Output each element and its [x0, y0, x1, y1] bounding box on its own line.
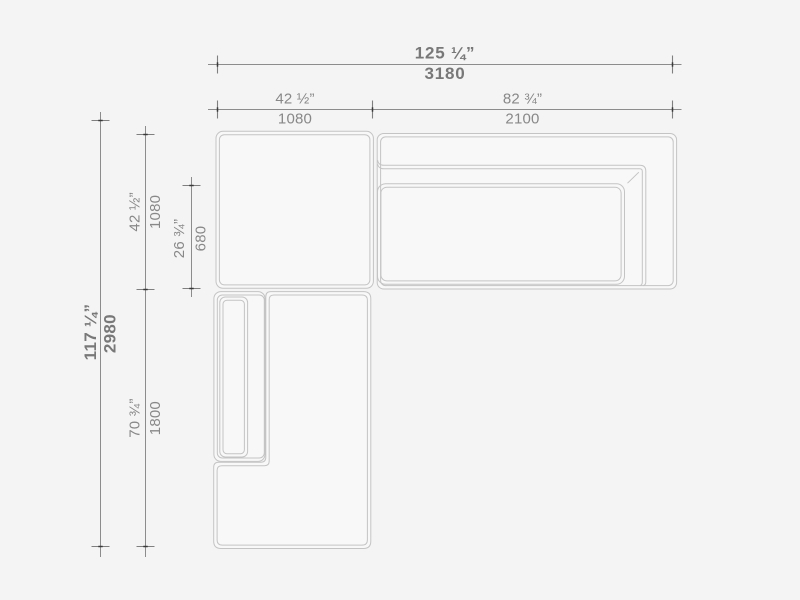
- svg-text:2100: 2100: [505, 111, 539, 128]
- svg-text:26 ¾”: 26 ¾”: [171, 219, 188, 258]
- svg-text:70 ¾”: 70 ¾”: [127, 398, 144, 437]
- svg-text:2980: 2980: [101, 314, 120, 353]
- svg-text:125 ¼”: 125 ¼”: [415, 44, 476, 63]
- svg-text:42 ½”: 42 ½”: [275, 91, 314, 108]
- svg-text:1080: 1080: [147, 195, 164, 229]
- svg-text:1080: 1080: [278, 111, 312, 128]
- svg-text:1800: 1800: [147, 401, 164, 435]
- svg-text:117 ¼”: 117 ¼”: [81, 304, 100, 361]
- svg-text:3180: 3180: [424, 64, 465, 83]
- svg-text:82 ¾”: 82 ¾”: [503, 91, 542, 108]
- svg-text:42 ½”: 42 ½”: [127, 192, 144, 231]
- svg-text:680: 680: [193, 226, 210, 252]
